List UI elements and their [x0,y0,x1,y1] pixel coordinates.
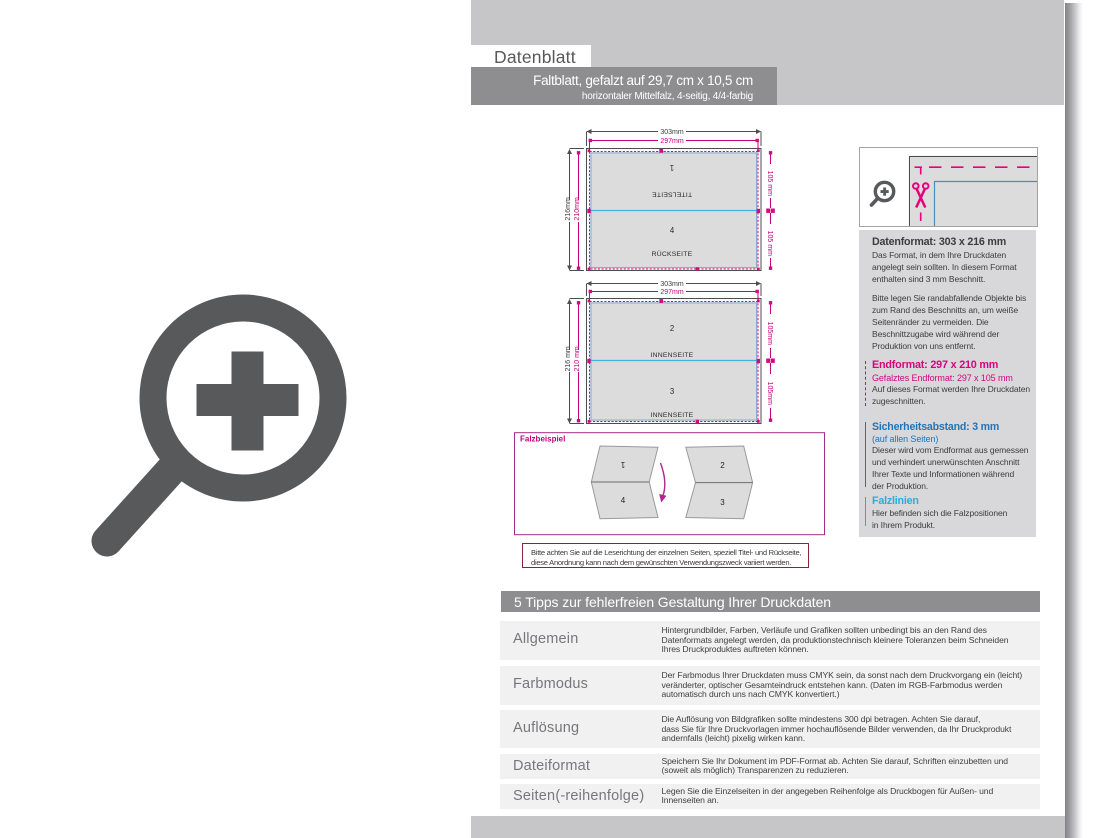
svg-text:210 mm: 210 mm [574,346,581,371]
svg-text:105mm: 105mm [766,382,773,406]
svg-text:210mm: 210mm [574,197,581,221]
svg-text:297mm: 297mm [660,289,684,296]
svg-text:2: 2 [670,324,674,333]
svg-text:RÜCKSEITE: RÜCKSEITE [652,250,693,258]
svg-text:INNENSEITE: INNENSEITE [651,352,694,359]
svg-text:1: 1 [670,163,674,172]
svg-text:4: 4 [621,496,626,505]
svg-text:105mm: 105mm [766,322,773,346]
svg-text:216mm: 216mm [565,197,572,221]
svg-text:4: 4 [670,226,675,235]
svg-text:303mm: 303mm [660,129,684,136]
svg-text:INNENSEITE: INNENSEITE [651,412,694,419]
svg-text:105 mm: 105 mm [766,171,773,196]
svg-text:216 mm: 216 mm [565,346,572,371]
svg-text:297mm: 297mm [660,138,684,145]
svg-text:303mm: 303mm [660,281,684,288]
svg-text:Falzbeispiel: Falzbeispiel [520,435,565,444]
svg-text:TITELSEITE: TITELSEITE [652,191,692,198]
svg-text:3: 3 [720,498,725,507]
svg-text:3: 3 [670,387,674,396]
svg-text:105 mm: 105 mm [766,231,773,256]
svg-text:2: 2 [720,461,725,470]
svg-text:1: 1 [620,460,625,469]
